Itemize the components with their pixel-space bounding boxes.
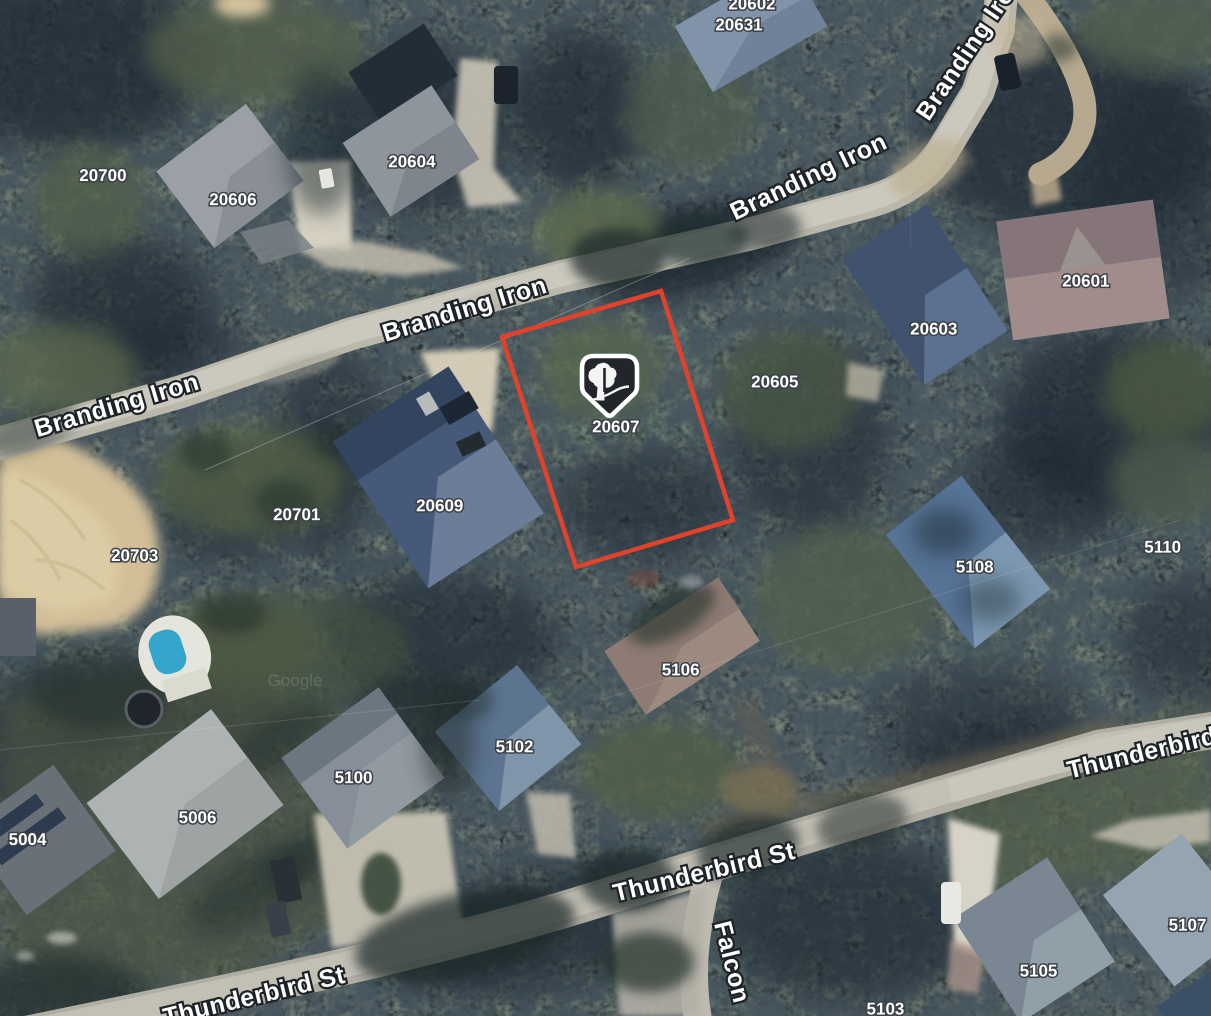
svg-text:20631: 20631: [715, 15, 762, 34]
svg-text:20701: 20701: [273, 505, 320, 524]
svg-text:Google: Google: [268, 671, 323, 690]
svg-text:5100: 5100: [335, 768, 373, 787]
svg-text:20601: 20601: [1062, 272, 1109, 291]
svg-text:5004: 5004: [9, 830, 47, 849]
svg-text:20606: 20606: [209, 190, 256, 209]
svg-text:5107: 5107: [1169, 916, 1207, 935]
svg-text:5006: 5006: [179, 808, 217, 827]
svg-text:20605: 20605: [751, 372, 798, 391]
svg-text:20602: 20602: [728, 0, 775, 13]
svg-text:5108: 5108: [956, 558, 994, 577]
svg-text:20607: 20607: [592, 417, 639, 436]
svg-text:5105: 5105: [1020, 962, 1058, 981]
svg-text:20604: 20604: [388, 152, 436, 171]
svg-text:20609: 20609: [416, 496, 463, 515]
svg-text:20700: 20700: [79, 166, 126, 185]
svg-text:5110: 5110: [1144, 538, 1181, 557]
svg-text:5106: 5106: [662, 660, 700, 679]
svg-text:5103: 5103: [867, 999, 905, 1016]
svg-text:20603: 20603: [910, 319, 957, 338]
svg-text:20703: 20703: [111, 546, 158, 565]
svg-text:5102: 5102: [496, 737, 534, 756]
